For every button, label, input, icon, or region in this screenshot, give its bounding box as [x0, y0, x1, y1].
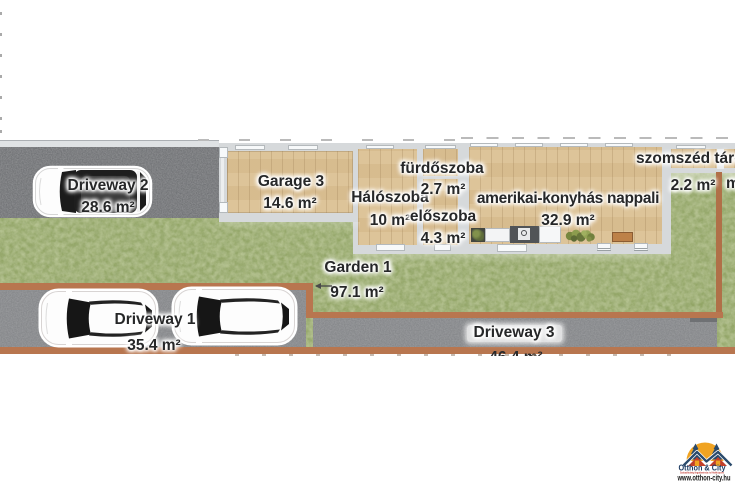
svg-text:www.otthon-city.hu: www.otthon-city.hu [677, 474, 731, 483]
